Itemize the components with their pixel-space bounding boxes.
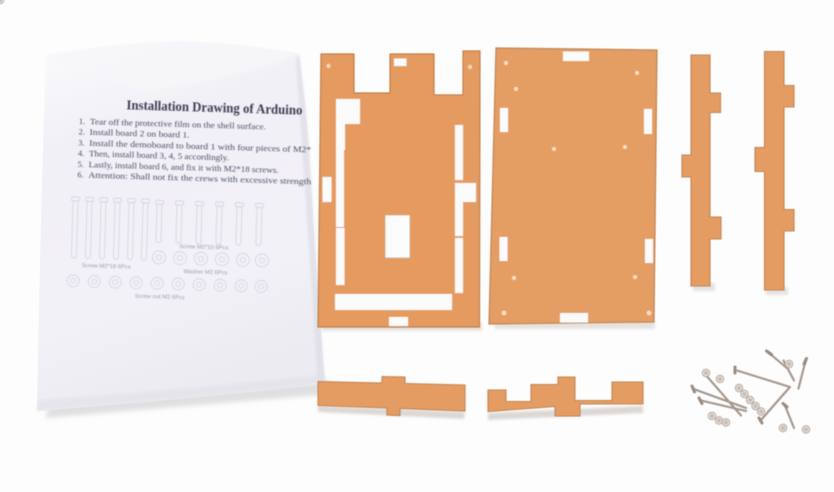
- svg-text:4.: 4.: [78, 149, 84, 158]
- svg-text:6.: 6.: [77, 170, 83, 179]
- svg-text:5.: 5.: [78, 160, 84, 169]
- svg-text:2.: 2.: [79, 128, 85, 137]
- svg-text:3.: 3.: [78, 138, 84, 147]
- svg-text:1.: 1.: [79, 117, 85, 126]
